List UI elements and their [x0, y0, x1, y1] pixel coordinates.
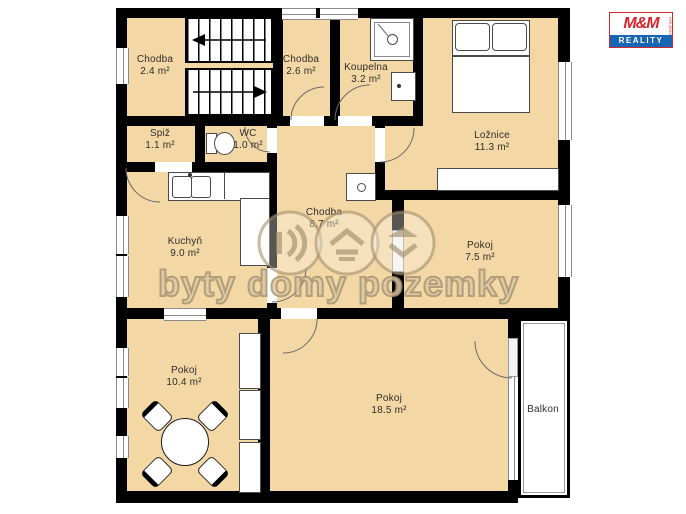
logo-mm-text: M&M [610, 13, 672, 34]
logo-holding-text: HOLDING [668, 17, 671, 35]
agency-logo: M&M HOLDING REALITY [609, 12, 673, 48]
watermark-icons-svg [0, 0, 686, 514]
floorplan-canvas: Chodba 2.4 m² Chodba 2.6 m² Koupelna 3.2… [0, 0, 686, 514]
watermark-text: byty domy pozemky [158, 263, 503, 305]
logo-reality-bar: REALITY [610, 35, 672, 47]
